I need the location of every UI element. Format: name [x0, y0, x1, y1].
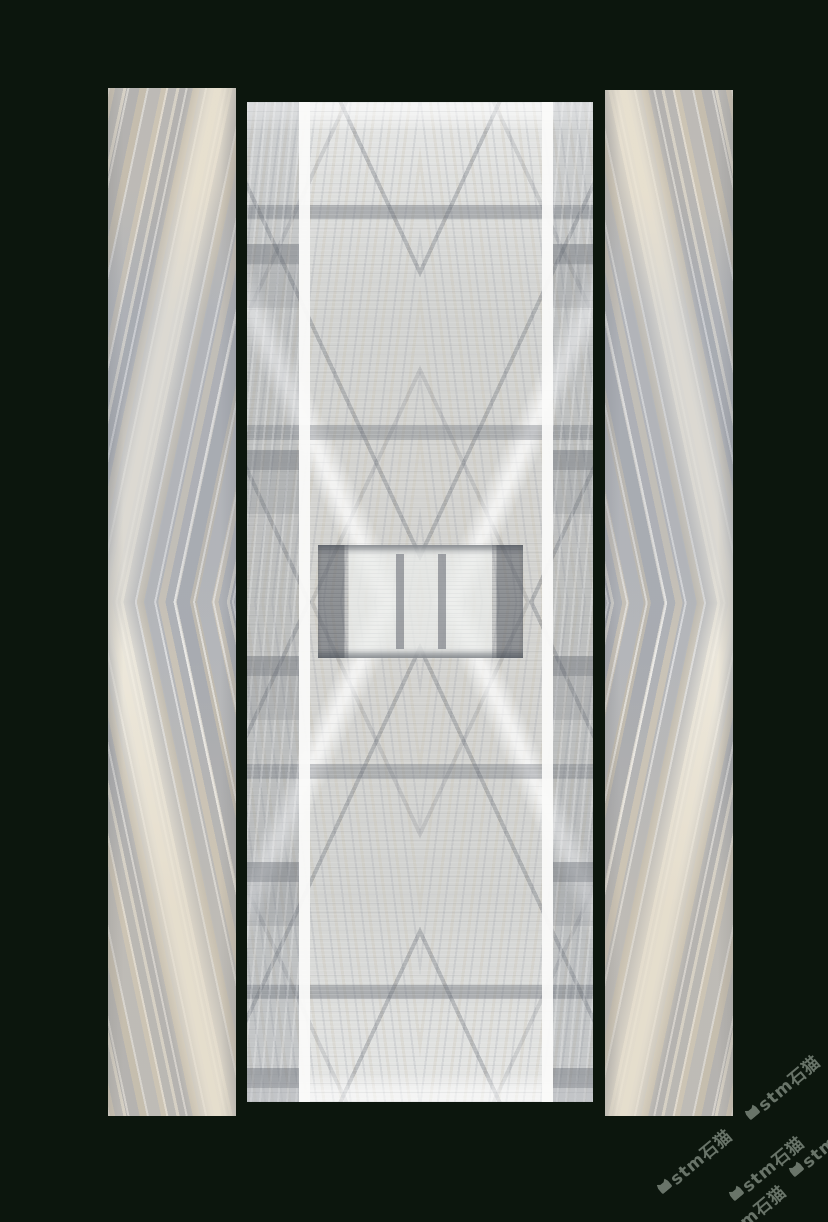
marble-slab-left: [108, 88, 236, 1116]
watermark-text: stm石猫: [663, 1122, 736, 1189]
cat-icon: [656, 1178, 673, 1195]
watermark: stm石猫: [723, 1129, 809, 1207]
border-column-left: [247, 102, 299, 1102]
white-inlay-stripe-right: [542, 102, 553, 1102]
watermark: stm石猫: [783, 1105, 828, 1183]
marble-slab-center: [247, 102, 593, 1102]
border-column-right: [553, 102, 593, 1102]
cat-icon: [728, 1185, 745, 1202]
medallion-bar: [438, 554, 446, 649]
slab-bookmatch-bottom: [605, 603, 733, 1116]
watermark-text: stm石猫: [735, 1129, 808, 1196]
watermark-text: stm石猫: [795, 1105, 828, 1172]
cat-icon: [788, 1161, 805, 1178]
medallion-bar: [396, 554, 404, 649]
watermark: stm石猫: [651, 1122, 737, 1200]
stone-display-canvas: stm石猫 stm石猫 stm石猫 stm石猫 stm石猫: [0, 0, 828, 1222]
slab-bookmatch-top: [605, 90, 733, 603]
center-medallion: [318, 545, 523, 658]
watermark: stm石猫: [705, 1178, 791, 1222]
slab-bookmatch-top: [108, 88, 236, 602]
slab-mirror-wrapper: [605, 90, 733, 1116]
marble-slab-right: [605, 90, 733, 1116]
watermark: stm石猫: [739, 1048, 825, 1126]
watermark-text: stm石猫: [717, 1178, 790, 1222]
white-inlay-stripe-left: [299, 102, 310, 1102]
slab-bookmatch-bottom: [108, 602, 236, 1116]
watermark-text: stm石猫: [751, 1048, 824, 1115]
cat-icon: [744, 1104, 761, 1121]
